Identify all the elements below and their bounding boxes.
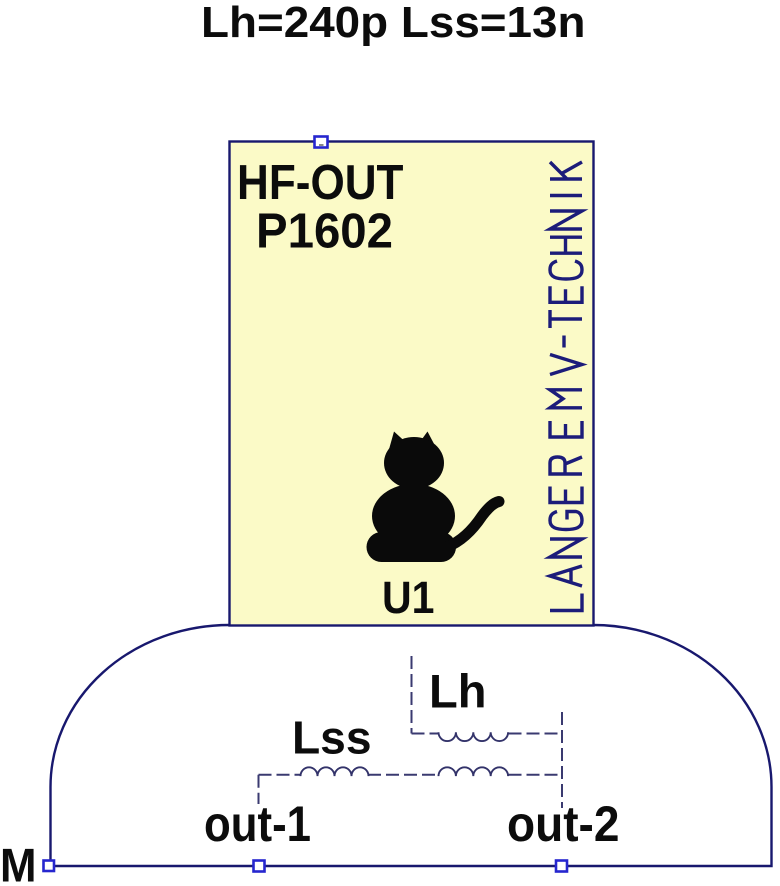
svg-text:HF-OUT: HF-OUT [237,156,404,210]
svg-text:M: M [0,840,37,886]
svg-text:P1602: P1602 [256,205,393,259]
svg-text:Lh=240p Lss=13n: Lh=240p Lss=13n [201,0,586,47]
svg-text:Lss: Lss [292,712,372,764]
svg-text:U1: U1 [382,572,435,623]
svg-text:Lh: Lh [429,665,487,718]
svg-text:out-2: out-2 [507,796,620,852]
svg-text:out-1: out-1 [204,796,311,852]
